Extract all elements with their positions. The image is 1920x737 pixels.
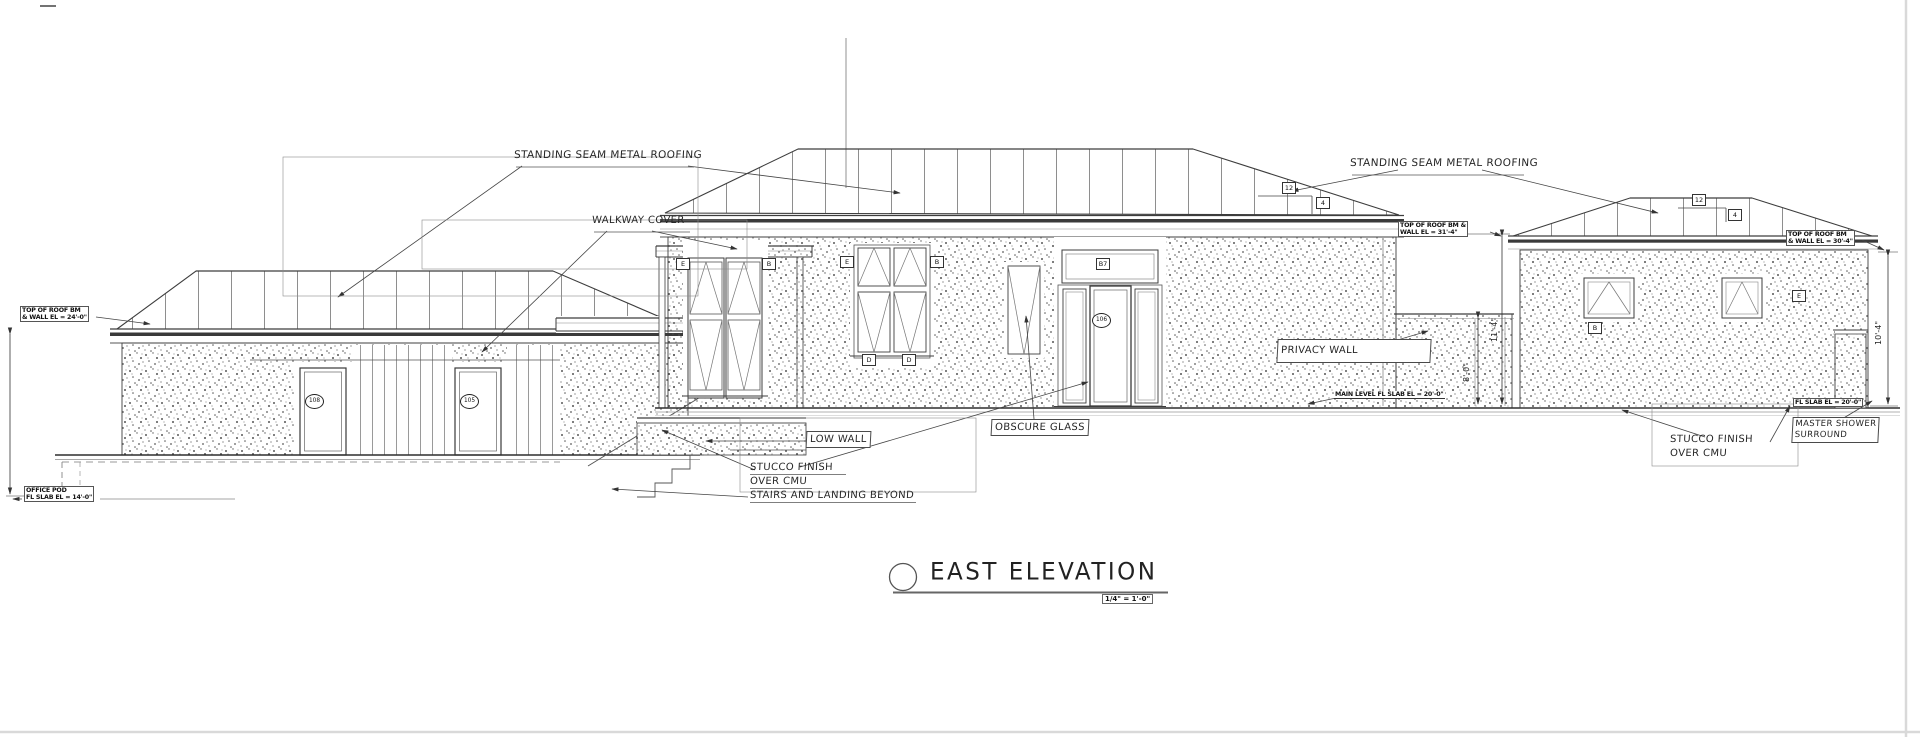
callout-office-pod: OFFICE POD FL SLAB EL = 14'-0" bbox=[24, 486, 94, 502]
drawing-scale: 1/4" = 1'-0" bbox=[1102, 594, 1153, 604]
dim-right-wall-height: 10'-4" bbox=[1874, 321, 1883, 345]
door-tag-entry: 106 bbox=[1092, 313, 1111, 328]
door-tag-105: 105 bbox=[460, 394, 479, 409]
window-tag-d: D bbox=[902, 354, 916, 366]
label-stucco-right-1: STUCCO FINISH bbox=[1670, 434, 1754, 445]
slope-run-tag: 12 bbox=[1692, 194, 1706, 206]
left-building bbox=[55, 271, 700, 499]
window-tag-e: E bbox=[840, 256, 854, 268]
window-tag-e: E bbox=[676, 258, 690, 270]
dim-privacy-wall-height: 8'-0" bbox=[1462, 363, 1471, 382]
dim-center-wall-height: 11'-4" bbox=[1490, 318, 1499, 342]
callout-right-roof-line1: TOP OF ROOF BM bbox=[1788, 231, 1853, 238]
label-stucco-left-2: OVER CMU bbox=[750, 476, 808, 487]
label-stairs: STAIRS AND LANDING BEYOND bbox=[750, 490, 915, 501]
label-stucco-right-2: OVER CMU bbox=[1670, 448, 1728, 459]
slope-run-tag: 12 bbox=[1282, 182, 1296, 194]
callout-center-roof: TOP OF ROOF BM & WALL EL = 31'-4" bbox=[1398, 221, 1468, 237]
slope-rise-tag: 4 bbox=[1728, 209, 1742, 221]
callout-office-pod-line2: FL SLAB EL = 14'-0" bbox=[26, 494, 92, 501]
callout-left-roof: TOP OF ROOF BM & WALL EL = 24'-0" bbox=[20, 306, 89, 322]
callout-right-roof: TOP OF ROOF BM & WALL EL = 30'-4" bbox=[1786, 230, 1855, 246]
window-tag-d: D bbox=[862, 354, 876, 366]
window-tag-b: B bbox=[1588, 322, 1602, 334]
callout-left-roof-line2: & WALL EL = 24'-0" bbox=[22, 314, 87, 321]
door-tag-108: 108 bbox=[305, 394, 324, 409]
callout-right-slab: FL SLAB EL = 20'-0" bbox=[1793, 398, 1863, 407]
window-tag-b: B bbox=[930, 256, 944, 268]
label-stucco-left-1: STUCCO FINISH bbox=[750, 462, 834, 473]
label-privacy-wall: PRIVACY WALL bbox=[1276, 339, 1431, 363]
callout-center-roof-line2: WALL EL = 31'-4" bbox=[1400, 229, 1466, 236]
elevation-sheet: STANDING SEAM METAL ROOFING STANDING SEA… bbox=[0, 0, 1920, 737]
label-walkway-cover: WALKWAY COVER bbox=[592, 215, 685, 226]
label-master-shower-line1: MASTER SHOWER bbox=[1795, 419, 1877, 430]
label-standing-seam-left: STANDING SEAM METAL ROOFING bbox=[514, 149, 703, 161]
drawing-title: EAST ELEVATION bbox=[930, 558, 1157, 585]
label-obscure-glass: OBSCURE GLASS bbox=[991, 419, 1090, 436]
elevation-linework bbox=[0, 0, 1920, 737]
callout-right-roof-line2: & WALL EL = 30'-4" bbox=[1788, 238, 1853, 245]
callout-main-level: MAIN LEVEL FL SLAB EL = 20'-0" bbox=[1334, 391, 1445, 399]
label-master-shower-line2: SURROUND bbox=[1794, 430, 1876, 441]
callout-office-pod-line1: OFFICE POD bbox=[26, 487, 92, 494]
window-tag-transom: B7 bbox=[1096, 258, 1110, 270]
window-tag-e: E bbox=[1792, 290, 1806, 302]
label-standing-seam-right: STANDING SEAM METAL ROOFING bbox=[1350, 157, 1539, 169]
label-master-shower: MASTER SHOWER SURROUND bbox=[1791, 417, 1879, 443]
callout-center-roof-line1: TOP OF ROOF BM & bbox=[1400, 222, 1466, 229]
window-tag-b: B bbox=[762, 258, 776, 270]
label-low-wall: LOW WALL bbox=[806, 431, 872, 448]
slope-rise-tag: 4 bbox=[1316, 197, 1330, 209]
callout-left-roof-line1: TOP OF ROOF BM bbox=[22, 307, 87, 314]
